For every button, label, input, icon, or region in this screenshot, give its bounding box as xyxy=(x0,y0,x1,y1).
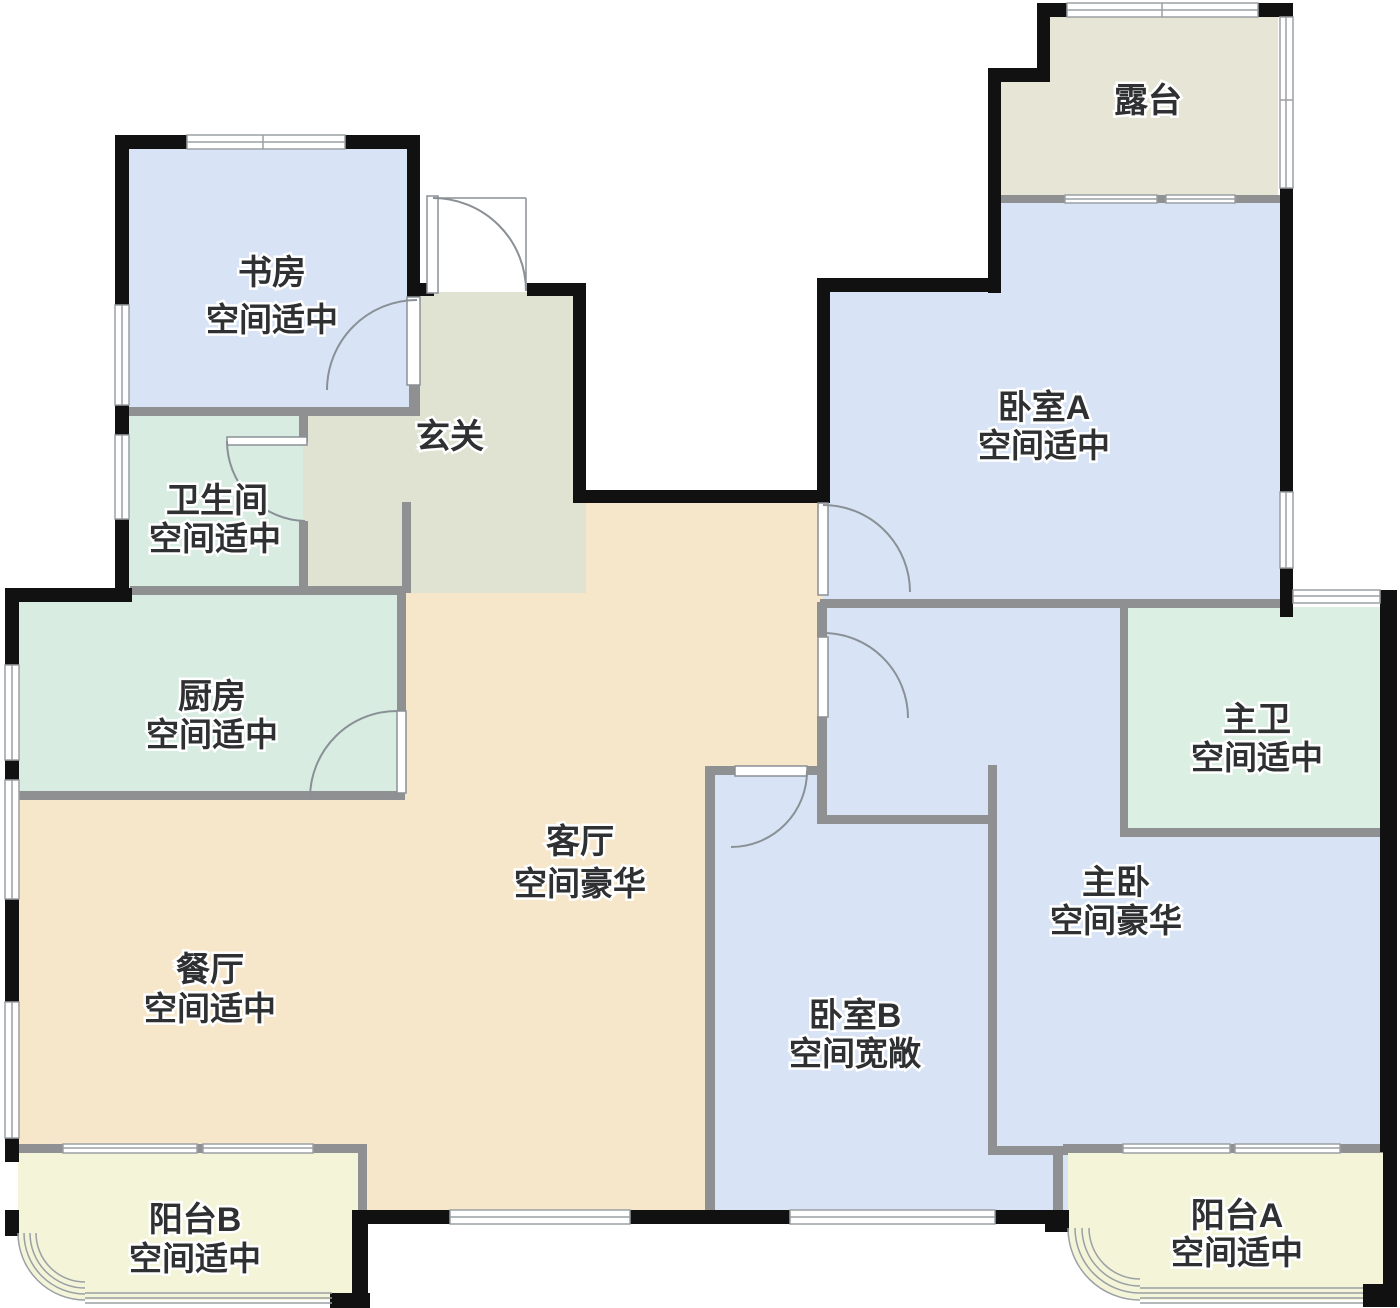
wall-segment xyxy=(988,68,1001,293)
status-living-room: 空间豪华 xyxy=(514,865,646,902)
label-living-room: 客厅 xyxy=(546,822,614,861)
wall-segment xyxy=(705,766,735,775)
wall-segment xyxy=(5,588,132,602)
wall-segment xyxy=(817,716,827,822)
wall-segment xyxy=(817,278,1000,292)
floorplan-svg: 书房 空间适中 玄关 卫生间 空间适中 厨房 空间适中 客厅 空间豪华 餐厅 空… xyxy=(0,0,1400,1308)
label-terrace: 露台 xyxy=(1114,82,1182,120)
label-bathroom: 卫生间 xyxy=(166,482,268,520)
wall-segment xyxy=(5,899,19,1002)
status-dining-room: 空间适中 xyxy=(144,990,276,1027)
study-door-leaf xyxy=(407,297,420,385)
wall-segment xyxy=(1037,3,1067,17)
wall-segment xyxy=(115,405,129,435)
master-corridor-door-leaf xyxy=(818,637,828,717)
wall-segment xyxy=(1363,1284,1397,1307)
label-bedroom-a: 卧室A xyxy=(998,388,1091,427)
wall-segment xyxy=(407,135,420,297)
entry-door-leaf xyxy=(427,196,438,293)
wall-segment xyxy=(5,760,19,780)
floorplan-canvas: 书房 空间适中 玄关 卫生间 空间适中 厨房 空间适中 客厅 空间豪华 餐厅 空… xyxy=(0,0,1400,1308)
wall-segment xyxy=(358,1144,367,1214)
status-bedroom-a: 空间适中 xyxy=(978,427,1110,464)
wall-segment xyxy=(573,490,823,503)
wall-segment xyxy=(1120,828,1386,837)
entry-door-arc xyxy=(433,198,526,291)
wall-segment xyxy=(1280,195,1293,492)
wall-segment xyxy=(573,290,586,503)
wall-segment xyxy=(5,588,19,665)
wall-segment xyxy=(820,599,1280,608)
label-bedroom-b: 卧室B xyxy=(809,996,902,1035)
wall-segment xyxy=(630,1210,790,1224)
bedroom-b-door-leaf xyxy=(735,766,807,776)
wall-segment xyxy=(115,519,129,594)
wall-segment xyxy=(995,1210,1068,1224)
status-study: 空间适中 xyxy=(206,301,338,338)
label-balcony-b: 阳台B xyxy=(149,1201,242,1239)
status-balcony-a: 空间适中 xyxy=(1171,1234,1303,1271)
wall-segment xyxy=(817,815,997,824)
status-bedroom-b: 空间宽敞 xyxy=(789,1035,922,1072)
wall-segment xyxy=(1120,602,1128,836)
wall-segment xyxy=(1383,1152,1397,1307)
rooms xyxy=(18,17,1386,1300)
wall-segment xyxy=(1280,568,1293,617)
bathroom-door-leaf xyxy=(227,437,307,445)
label-hallway: 玄关 xyxy=(416,418,484,456)
label-dining-room: 餐厅 xyxy=(176,951,244,989)
wall-segment xyxy=(115,135,129,305)
wall-segment xyxy=(1380,590,1397,1152)
status-balcony-b: 空间适中 xyxy=(129,1240,261,1277)
wall-segment xyxy=(397,593,406,711)
wall-segment xyxy=(299,521,308,595)
status-master-bathroom: 空间适中 xyxy=(1191,739,1323,776)
wall-segment xyxy=(402,502,411,593)
wall-segment xyxy=(1258,3,1293,17)
wall-segment xyxy=(817,278,830,503)
label-balcony-a: 阳台A xyxy=(1191,1197,1284,1235)
wall-segment xyxy=(988,765,997,1155)
wall-segment xyxy=(18,791,405,800)
status-kitchen: 空间适中 xyxy=(146,716,278,753)
wall-segment xyxy=(5,1210,19,1236)
kitchen-door-leaf xyxy=(397,711,406,793)
wall-segment xyxy=(409,384,420,416)
label-master-bedroom: 主卧 xyxy=(1082,864,1150,902)
wall-segment xyxy=(115,407,420,416)
label-master-bathroom: 主卫 xyxy=(1223,701,1291,739)
status-master-bedroom: 空间豪华 xyxy=(1050,902,1182,939)
wall-segment xyxy=(130,586,405,595)
wall-segment xyxy=(1053,1146,1063,1216)
wall-segment xyxy=(817,602,827,637)
wall-segment xyxy=(5,1138,19,1162)
label-kitchen: 厨房 xyxy=(178,678,246,716)
bedroom-a-door-leaf xyxy=(818,503,828,595)
status-bathroom: 空间适中 xyxy=(149,520,281,557)
label-study: 书房 xyxy=(238,254,306,292)
wall-segment xyxy=(330,1293,370,1308)
wall-segment xyxy=(705,766,715,1215)
